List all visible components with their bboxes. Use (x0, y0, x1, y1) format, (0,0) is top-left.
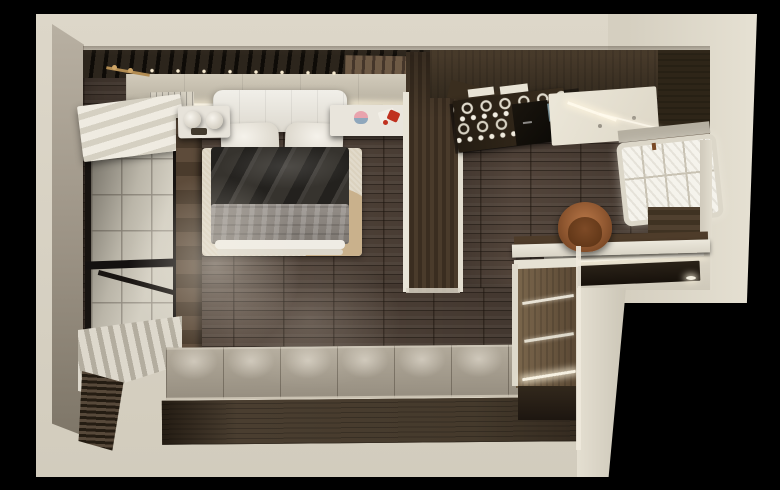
desk-chair (558, 202, 612, 252)
step-corner-glow (686, 276, 696, 280)
counter-left-edge (512, 264, 518, 386)
chair-seat (568, 217, 602, 247)
hood-mark (523, 121, 532, 124)
wardrobe-bottom-edge (406, 288, 460, 293)
globe-lamp (206, 112, 223, 129)
bedroom-right-wall-face (577, 288, 628, 477)
apartment-top-view-render (0, 0, 780, 490)
extractor-hood (512, 100, 553, 146)
counter-column (516, 264, 578, 388)
top-wall-inner-shadow (83, 46, 710, 56)
red-decor-dot (383, 120, 388, 125)
brass-peg (128, 68, 133, 73)
window-knob (652, 143, 657, 150)
wardrobe-edge-left (403, 92, 409, 292)
counter-base-dark (518, 386, 578, 420)
brass-peg (112, 65, 117, 70)
downlight-dot (632, 116, 636, 120)
globe-lamp (184, 111, 201, 128)
window-light-haze-soft (180, 220, 440, 420)
pink-decor (354, 111, 368, 124)
downlight-dot (598, 124, 602, 128)
nightstand-tray (191, 128, 207, 135)
wall-edge-highlight (576, 246, 581, 450)
side-table (330, 105, 414, 136)
